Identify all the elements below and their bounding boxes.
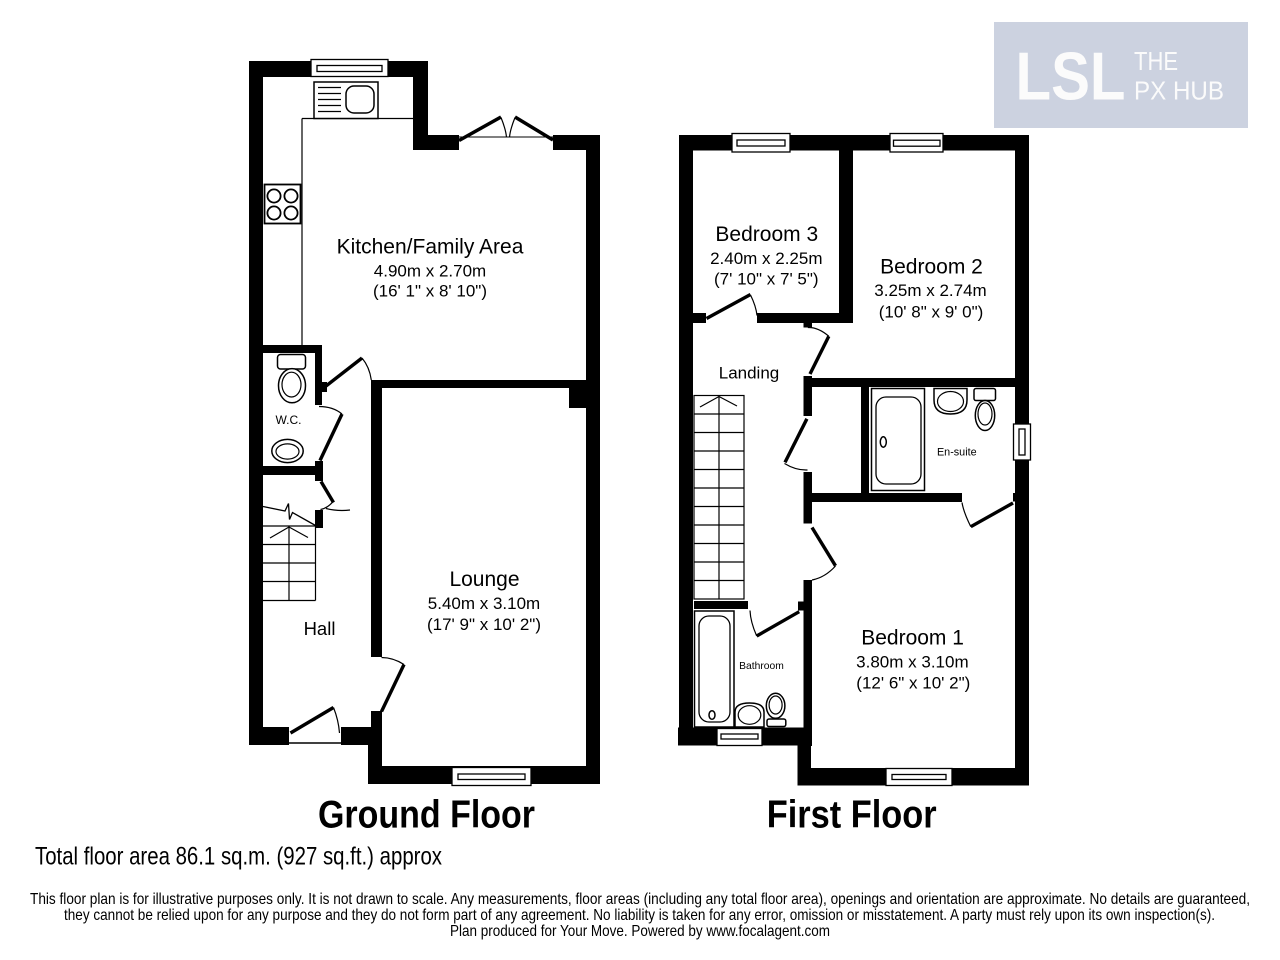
svg-text:they cannot be relied upon for: they cannot be relied upon for any purpo…	[64, 907, 1215, 924]
svg-text:Ground Floor: Ground Floor	[318, 794, 535, 837]
svg-text:Total floor area 86.1 sq.m. (9: Total floor area 86.1 sq.m. (927 sq.ft.)…	[35, 843, 442, 871]
svg-text:(10' 8" x 9' 0"): (10' 8" x 9' 0")	[879, 303, 984, 322]
svg-text:(12' 6" x 10' 2"): (12' 6" x 10' 2")	[856, 673, 970, 692]
svg-text:This floor plan is for illustr: This floor plan is for illustrative purp…	[30, 891, 1250, 908]
svg-text:(17' 9" x 10' 2"): (17' 9" x 10' 2")	[427, 615, 541, 634]
svg-text:(7' 10" x 7' 5"): (7' 10" x 7' 5")	[714, 270, 819, 289]
svg-text:Kitchen/Family Area: Kitchen/Family Area	[337, 236, 524, 259]
svg-text:Bedroom 2: Bedroom 2	[880, 256, 983, 279]
svg-text:Landing: Landing	[719, 364, 780, 383]
svg-text:PX HUB: PX HUB	[1134, 76, 1224, 106]
svg-text:Hall: Hall	[304, 618, 336, 639]
svg-text:3.25m x 2.74m: 3.25m x 2.74m	[874, 281, 986, 300]
svg-text:Plan produced for Your Move. P: Plan produced for Your Move. Powered by …	[450, 923, 830, 940]
svg-text:(16' 1" x 8' 10"): (16' 1" x 8' 10")	[373, 282, 487, 301]
svg-text:THE: THE	[1134, 46, 1178, 76]
svg-text:LSL: LSL	[1016, 39, 1126, 115]
svg-text:W.C.: W.C.	[276, 413, 302, 427]
svg-text:Bathroom: Bathroom	[739, 661, 784, 672]
svg-text:2.40m x 2.25m: 2.40m x 2.25m	[710, 249, 822, 268]
svg-text:En-suite: En-suite	[937, 446, 977, 458]
svg-text:Bedroom 3: Bedroom 3	[715, 223, 818, 246]
svg-text:5.40m x 3.10m: 5.40m x 3.10m	[428, 594, 540, 613]
svg-text:3.80m x 3.10m: 3.80m x 3.10m	[856, 652, 968, 671]
svg-text:Lounge: Lounge	[449, 568, 519, 591]
svg-text:4.90m x 2.70m: 4.90m x 2.70m	[374, 262, 486, 281]
svg-text:First Floor: First Floor	[767, 794, 937, 837]
svg-text:Bedroom 1: Bedroom 1	[861, 627, 964, 650]
